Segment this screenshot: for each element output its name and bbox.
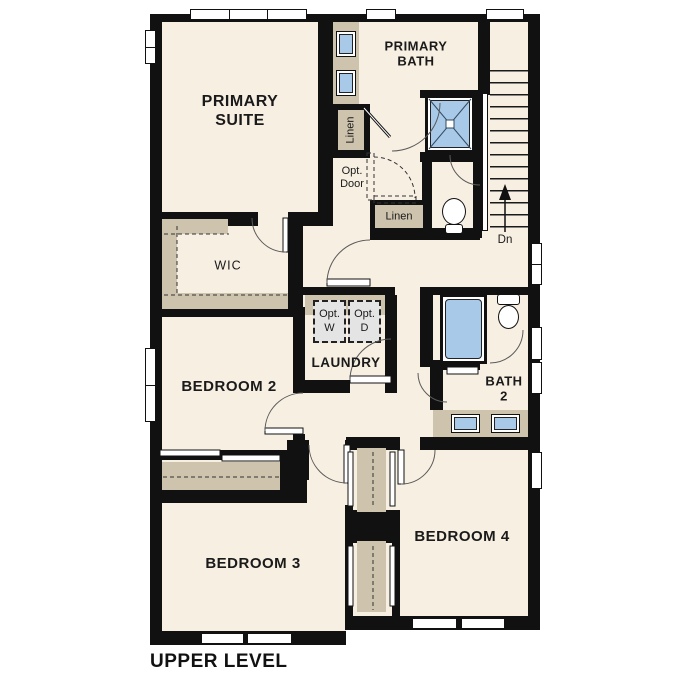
wall-ccloset-right xyxy=(392,543,400,616)
window-suite-left xyxy=(145,30,156,64)
opt-washer-line2: W xyxy=(324,322,334,336)
primary-bath-line2: BATH xyxy=(385,54,448,69)
opt-washer-line1: Opt. xyxy=(319,308,340,322)
window-suite-top xyxy=(190,9,307,20)
floorplan-canvas: Opt. W Opt. D xyxy=(0,0,687,687)
floor-cutout xyxy=(346,630,546,687)
wall-ccloset-mid xyxy=(345,510,400,543)
wall-closet3-bottom xyxy=(150,490,307,503)
wall-bath2-bottom xyxy=(420,437,528,450)
primary-suite-line2: SUITE xyxy=(202,112,279,131)
label-bedroom3: BEDROOM 3 xyxy=(205,555,300,573)
label-opt-door: Opt. Door xyxy=(340,165,364,191)
label-primary-suite: PRIMARY SUITE xyxy=(202,93,279,131)
wall-wic-right xyxy=(288,212,303,315)
bath2-line2: 2 xyxy=(485,389,522,404)
bed3-closet-shelf xyxy=(162,462,280,490)
bath2-line1: BATH xyxy=(485,374,522,389)
vanity-sink-2 xyxy=(336,70,356,96)
label-bedroom2: BEDROOM 2 xyxy=(181,378,276,396)
wic-shelf-bottom xyxy=(162,293,288,309)
window-hall-right xyxy=(531,243,542,285)
window-bed3-bottom-1 xyxy=(201,633,244,644)
bath2-toilet-tank xyxy=(497,294,520,305)
window-bed4-bottom-2 xyxy=(461,618,505,629)
page-title: UPPER LEVEL xyxy=(150,651,287,673)
wall-ccloset-left xyxy=(345,505,353,630)
ccloset-shelf-lower xyxy=(357,541,386,612)
primary-shower xyxy=(425,95,475,153)
vanity-sink-1 xyxy=(336,31,356,57)
label-bath2: BATH 2 xyxy=(485,374,522,405)
wall-stair-left xyxy=(478,22,490,95)
primary-bath-line1: PRIMARY xyxy=(385,39,448,54)
bath2-sink-1 xyxy=(451,414,480,433)
primary-suite-line1: PRIMARY xyxy=(202,93,279,112)
window-bath-top xyxy=(366,9,396,20)
window-bed2-left xyxy=(145,348,156,422)
label-laundry: LAUNDRY xyxy=(312,355,381,371)
label-stairs-down: Dn xyxy=(498,234,513,248)
wall-laundry-bottom xyxy=(303,380,350,393)
primary-toilet-tank xyxy=(445,224,463,234)
opt-dryer-line2: D xyxy=(361,322,369,336)
opt-door-line2: Door xyxy=(340,178,364,191)
window-stair-top xyxy=(486,9,524,20)
bath2-tub xyxy=(440,294,487,364)
wall-closet3-end xyxy=(280,450,307,492)
window-bath2-right-2 xyxy=(531,362,542,394)
stair-rail xyxy=(482,93,488,231)
wall-laundry-top xyxy=(303,287,395,295)
primary-toilet-bowl xyxy=(442,198,466,225)
window-bed4-bottom-1 xyxy=(412,618,457,629)
label-bedroom4: BEDROOM 4 xyxy=(414,528,509,546)
opt-washer-box: Opt. W xyxy=(313,300,346,343)
wall-bath2-left-upper xyxy=(420,287,433,367)
window-bed4-right xyxy=(531,452,542,489)
label-linen-lower: Linen xyxy=(386,211,413,224)
label-wic: WIC xyxy=(214,259,241,274)
wall-suite-right xyxy=(318,22,333,212)
window-bath2-right-1 xyxy=(531,327,542,360)
wall-right xyxy=(528,14,540,630)
opt-dryer-line1: Opt. xyxy=(354,308,375,322)
bath2-toilet-bowl xyxy=(498,305,519,329)
stair-treads xyxy=(490,70,528,232)
bath2-sink-2 xyxy=(491,414,520,433)
wall-laundry-right xyxy=(385,295,397,393)
opt-door-line1: Opt. xyxy=(340,165,364,178)
wall-left xyxy=(150,14,162,645)
opt-dryer-box: Opt. D xyxy=(348,300,381,343)
label-linen-upper: Linen xyxy=(345,117,358,144)
label-primary-bath: PRIMARY BATH xyxy=(385,39,448,70)
ccloset-shelf-upper xyxy=(357,448,386,512)
window-bed3-bottom-2 xyxy=(247,633,292,644)
